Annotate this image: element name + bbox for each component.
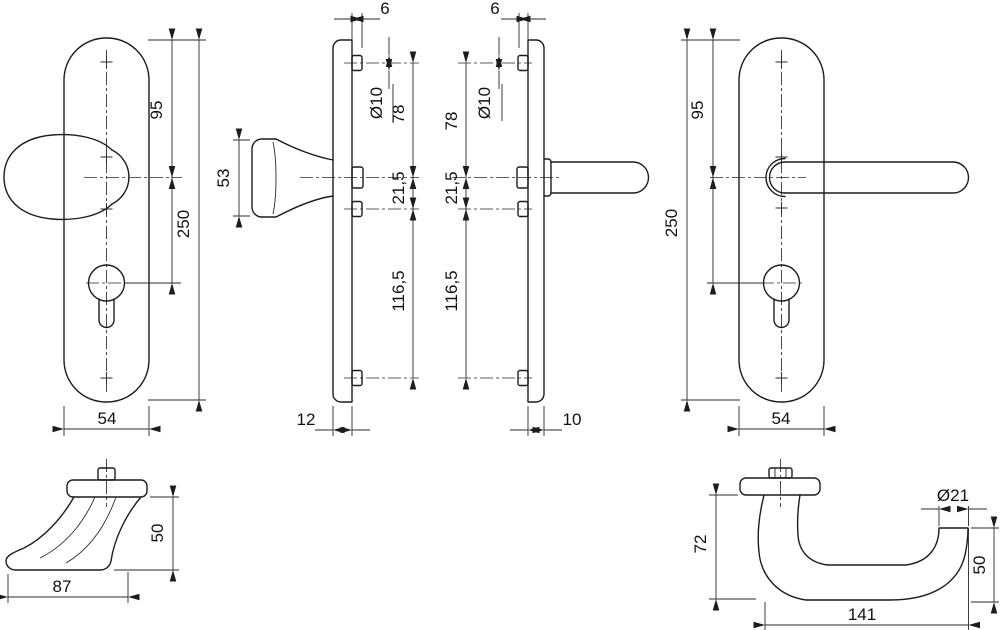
dim-label-6: 6: [380, 0, 389, 18]
screw-mark: [776, 151, 788, 163]
dim-label-6: 6: [490, 0, 499, 18]
lever-body-outline: [758, 495, 968, 600]
dim-label-21-5: 21,5: [442, 171, 461, 204]
dim-label-dia21: Ø21: [937, 486, 969, 505]
door-hardware-dimension-drawing: 95 250 54 53 6 Ø10: [0, 0, 1000, 630]
knob-side-outline: [252, 139, 333, 217]
dim-label-dia10: Ø10: [367, 87, 386, 119]
dim-label-141: 141: [848, 605, 876, 624]
dim-label-50: 50: [970, 556, 989, 575]
screw-mark: [776, 56, 788, 68]
dim-label-54: 54: [98, 409, 117, 428]
knob-side-top-curve: [276, 139, 333, 160]
screw-mark: [101, 372, 113, 384]
technical-drawing-page: 95 250 54 53 6 Ø10: [0, 0, 1000, 630]
dim-label-78: 78: [389, 105, 408, 124]
dim-label-95: 95: [688, 101, 707, 120]
dim-label-12: 12: [297, 410, 316, 429]
dim-label-dia10: Ø10: [475, 87, 494, 119]
view-knob-plate-front: 95 250 54: [4, 38, 206, 436]
dim-label-10: 10: [563, 410, 582, 429]
dim-label-50: 50: [148, 524, 167, 543]
screw-mark: [776, 202, 788, 214]
knob-boss-arc: [112, 150, 129, 204]
dim-label-78: 78: [442, 112, 461, 131]
dim-label-250: 250: [662, 209, 681, 237]
knob-body-contour: [66, 497, 116, 563]
dim-label-21-5: 21,5: [389, 171, 408, 204]
knob-cap: [67, 480, 147, 497]
plate-side-outline: [528, 40, 544, 402]
lever-side-outline: [544, 159, 648, 196]
knob-side-contour: [273, 142, 276, 214]
dim-label-250: 250: [174, 210, 193, 238]
dim-label-72: 72: [691, 535, 710, 554]
knob-front-outline: [4, 135, 112, 220]
dim-label-95: 95: [147, 101, 166, 120]
view-knob-profile: 50 87: [6, 459, 179, 603]
view-lever-plate-front: 95 250 54: [662, 38, 968, 436]
dim-label-116-5: 116,5: [442, 270, 461, 311]
screw-mark: [101, 151, 113, 163]
view-lever-plate-side: 6 Ø10 78 21,5 116,5 10: [442, 0, 648, 436]
knob-body-outline: [6, 497, 141, 570]
dim-label-54: 54: [772, 409, 791, 428]
screw-mark: [101, 56, 113, 68]
knob-body-contour: [40, 497, 95, 558]
dim-label-116-5: 116,5: [389, 270, 408, 311]
screw-mark: [776, 372, 788, 384]
dim-label-53: 53: [214, 169, 233, 188]
plate-side-outline: [333, 40, 352, 402]
view-lever-profile: Ø21 72 50 141: [691, 459, 999, 630]
view-knob-plate-side: 53 6 Ø10 78 21,5 116,5 12: [214, 0, 419, 436]
lever-grip-outline: [785, 162, 968, 193]
lever-cap: [740, 478, 820, 495]
dim-label-87: 87: [53, 577, 72, 596]
